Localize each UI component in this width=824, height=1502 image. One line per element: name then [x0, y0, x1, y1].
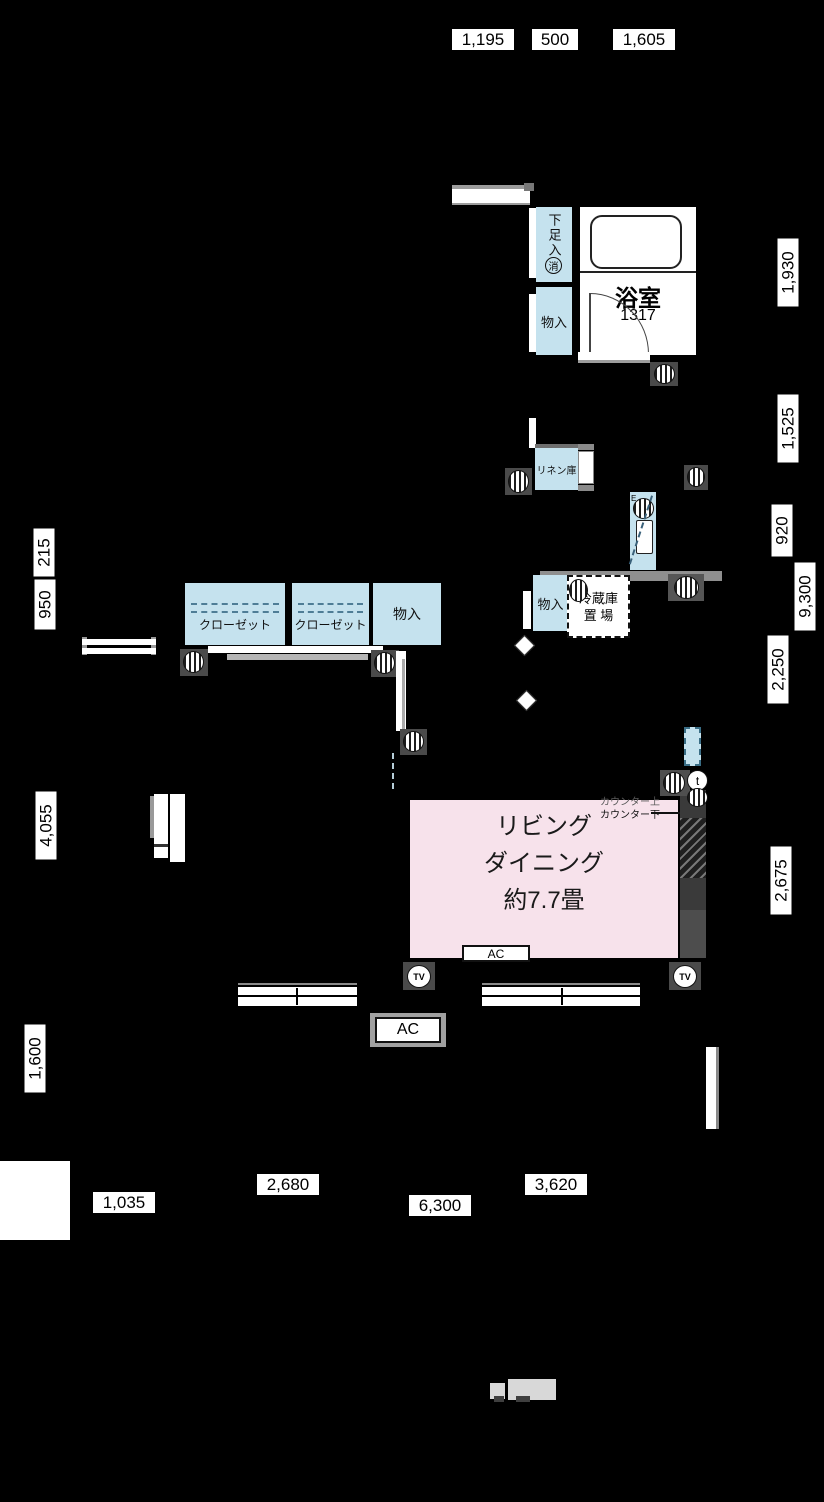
tv-jack-icon: TV [673, 965, 697, 988]
room-storage-3: 物入 [373, 583, 441, 645]
door-handle-icon [403, 731, 424, 752]
outlet-icon [674, 576, 699, 599]
fridge-label-2: 置 場 [584, 607, 614, 624]
dim-bottom-2680: 2,680 [257, 1174, 319, 1195]
outlet-icon [663, 772, 685, 794]
door-leaf [529, 294, 536, 352]
washer-space: E [630, 492, 656, 570]
door-handle-icon [374, 652, 395, 674]
door-leaf-line [402, 659, 405, 729]
window-icon [82, 637, 156, 656]
room-shoe-box: 下足入 消 [536, 207, 572, 282]
dim-bottom-6300: 6,300 [409, 1195, 471, 1216]
living-label-2: ダイニング [410, 845, 678, 882]
storage-3-label: 物入 [393, 604, 421, 624]
dim-right-1525: 1,525 [778, 395, 799, 463]
ac-living-box: AC [462, 945, 530, 962]
top-window [452, 185, 530, 205]
storage-2-label: 物入 [537, 594, 563, 613]
bathroom-divider [580, 271, 696, 273]
living-room-label: リビング ダイニング 約7.7畳 [410, 808, 678, 919]
window-icon [238, 983, 357, 1007]
logo-mark [494, 1396, 504, 1402]
counter-leader-line [651, 812, 683, 814]
counter-dashed-box [684, 727, 701, 766]
dim-bottom-1035: 1,035 [93, 1192, 155, 1213]
bathroom-door-opening [578, 352, 650, 363]
room-storage-1: 物入 [536, 287, 572, 355]
hanger-pipe-icon [191, 603, 279, 613]
dim-left-4055: 4,055 [36, 792, 57, 860]
dim-top-2: 500 [532, 29, 578, 50]
door-leaf [529, 208, 536, 278]
logo-mark [516, 1396, 530, 1402]
dim-right-9300: 9,300 [795, 563, 816, 631]
fire-alarm-icon: 消 [545, 257, 562, 274]
dim-top-1: 1,195 [452, 29, 514, 50]
storage-1-label: 物入 [541, 312, 567, 331]
wall-tick [578, 444, 594, 450]
outlet-icon [569, 579, 588, 602]
ac-unit: AC [370, 1013, 446, 1047]
room-linen: リネン庫 [535, 448, 578, 490]
floor-plan: 1,195 500 1,605 1,930 1,525 920 9,300 2,… [0, 0, 824, 1502]
dim-top-3: 1,605 [613, 29, 675, 50]
wall-tick [578, 485, 594, 491]
shoe-box-label: 下足入 [545, 213, 564, 258]
bathtub-icon [590, 215, 682, 269]
dim-right-2250: 2,250 [768, 636, 789, 704]
living-label-3: 約7.7畳 [410, 882, 678, 919]
ac-unit-label: AC [397, 1021, 419, 1039]
closet-2-label: クローゼット [294, 616, 366, 633]
tv-jack-icon: TV [407, 965, 431, 988]
door-handle-icon [183, 651, 204, 673]
dim-left-1600: 1,600 [25, 1025, 46, 1093]
light-diamond-icon [514, 635, 535, 656]
door-handle-icon [508, 470, 529, 493]
ac-living-label: AC [488, 947, 505, 961]
balcony-wall [706, 1047, 719, 1129]
room-storage-2: 物入 [533, 575, 568, 631]
outlet-icon [687, 788, 708, 807]
sliding-door [208, 646, 383, 653]
closet-1-label: クローゼット [199, 616, 271, 633]
plan-corner-block [0, 1161, 70, 1240]
dim-right-920: 920 [772, 505, 793, 557]
room-closet-2: クローゼット [292, 583, 369, 645]
window-icon [482, 983, 640, 1007]
dim-left-950: 950 [35, 580, 56, 630]
dim-right-2675: 2,675 [771, 847, 792, 915]
dim-bottom-3620: 3,620 [525, 1174, 587, 1195]
wall-strip [680, 790, 706, 958]
light-diamond-icon [516, 690, 537, 711]
door-leaf [523, 591, 531, 629]
door-leaf-line [589, 293, 591, 355]
boundary-dash-line [392, 753, 394, 789]
dim-right-1930: 1,930 [778, 239, 799, 307]
wall-tick [524, 183, 534, 191]
room-bathroom: 浴室 1317 [580, 207, 696, 355]
room-closet-1: クローゼット [185, 583, 285, 645]
dim-left-215: 215 [34, 529, 55, 577]
hanger-pipe-icon [298, 603, 363, 613]
outlet-icon [687, 467, 705, 487]
linen-door [578, 451, 594, 484]
outlet-icon [654, 364, 675, 384]
sliding-door [227, 654, 368, 660]
pillar-doors [150, 792, 187, 862]
linen-label: リネン庫 [537, 462, 577, 477]
room-living-dining: リビング ダイニング 約7.7畳 [410, 800, 678, 958]
